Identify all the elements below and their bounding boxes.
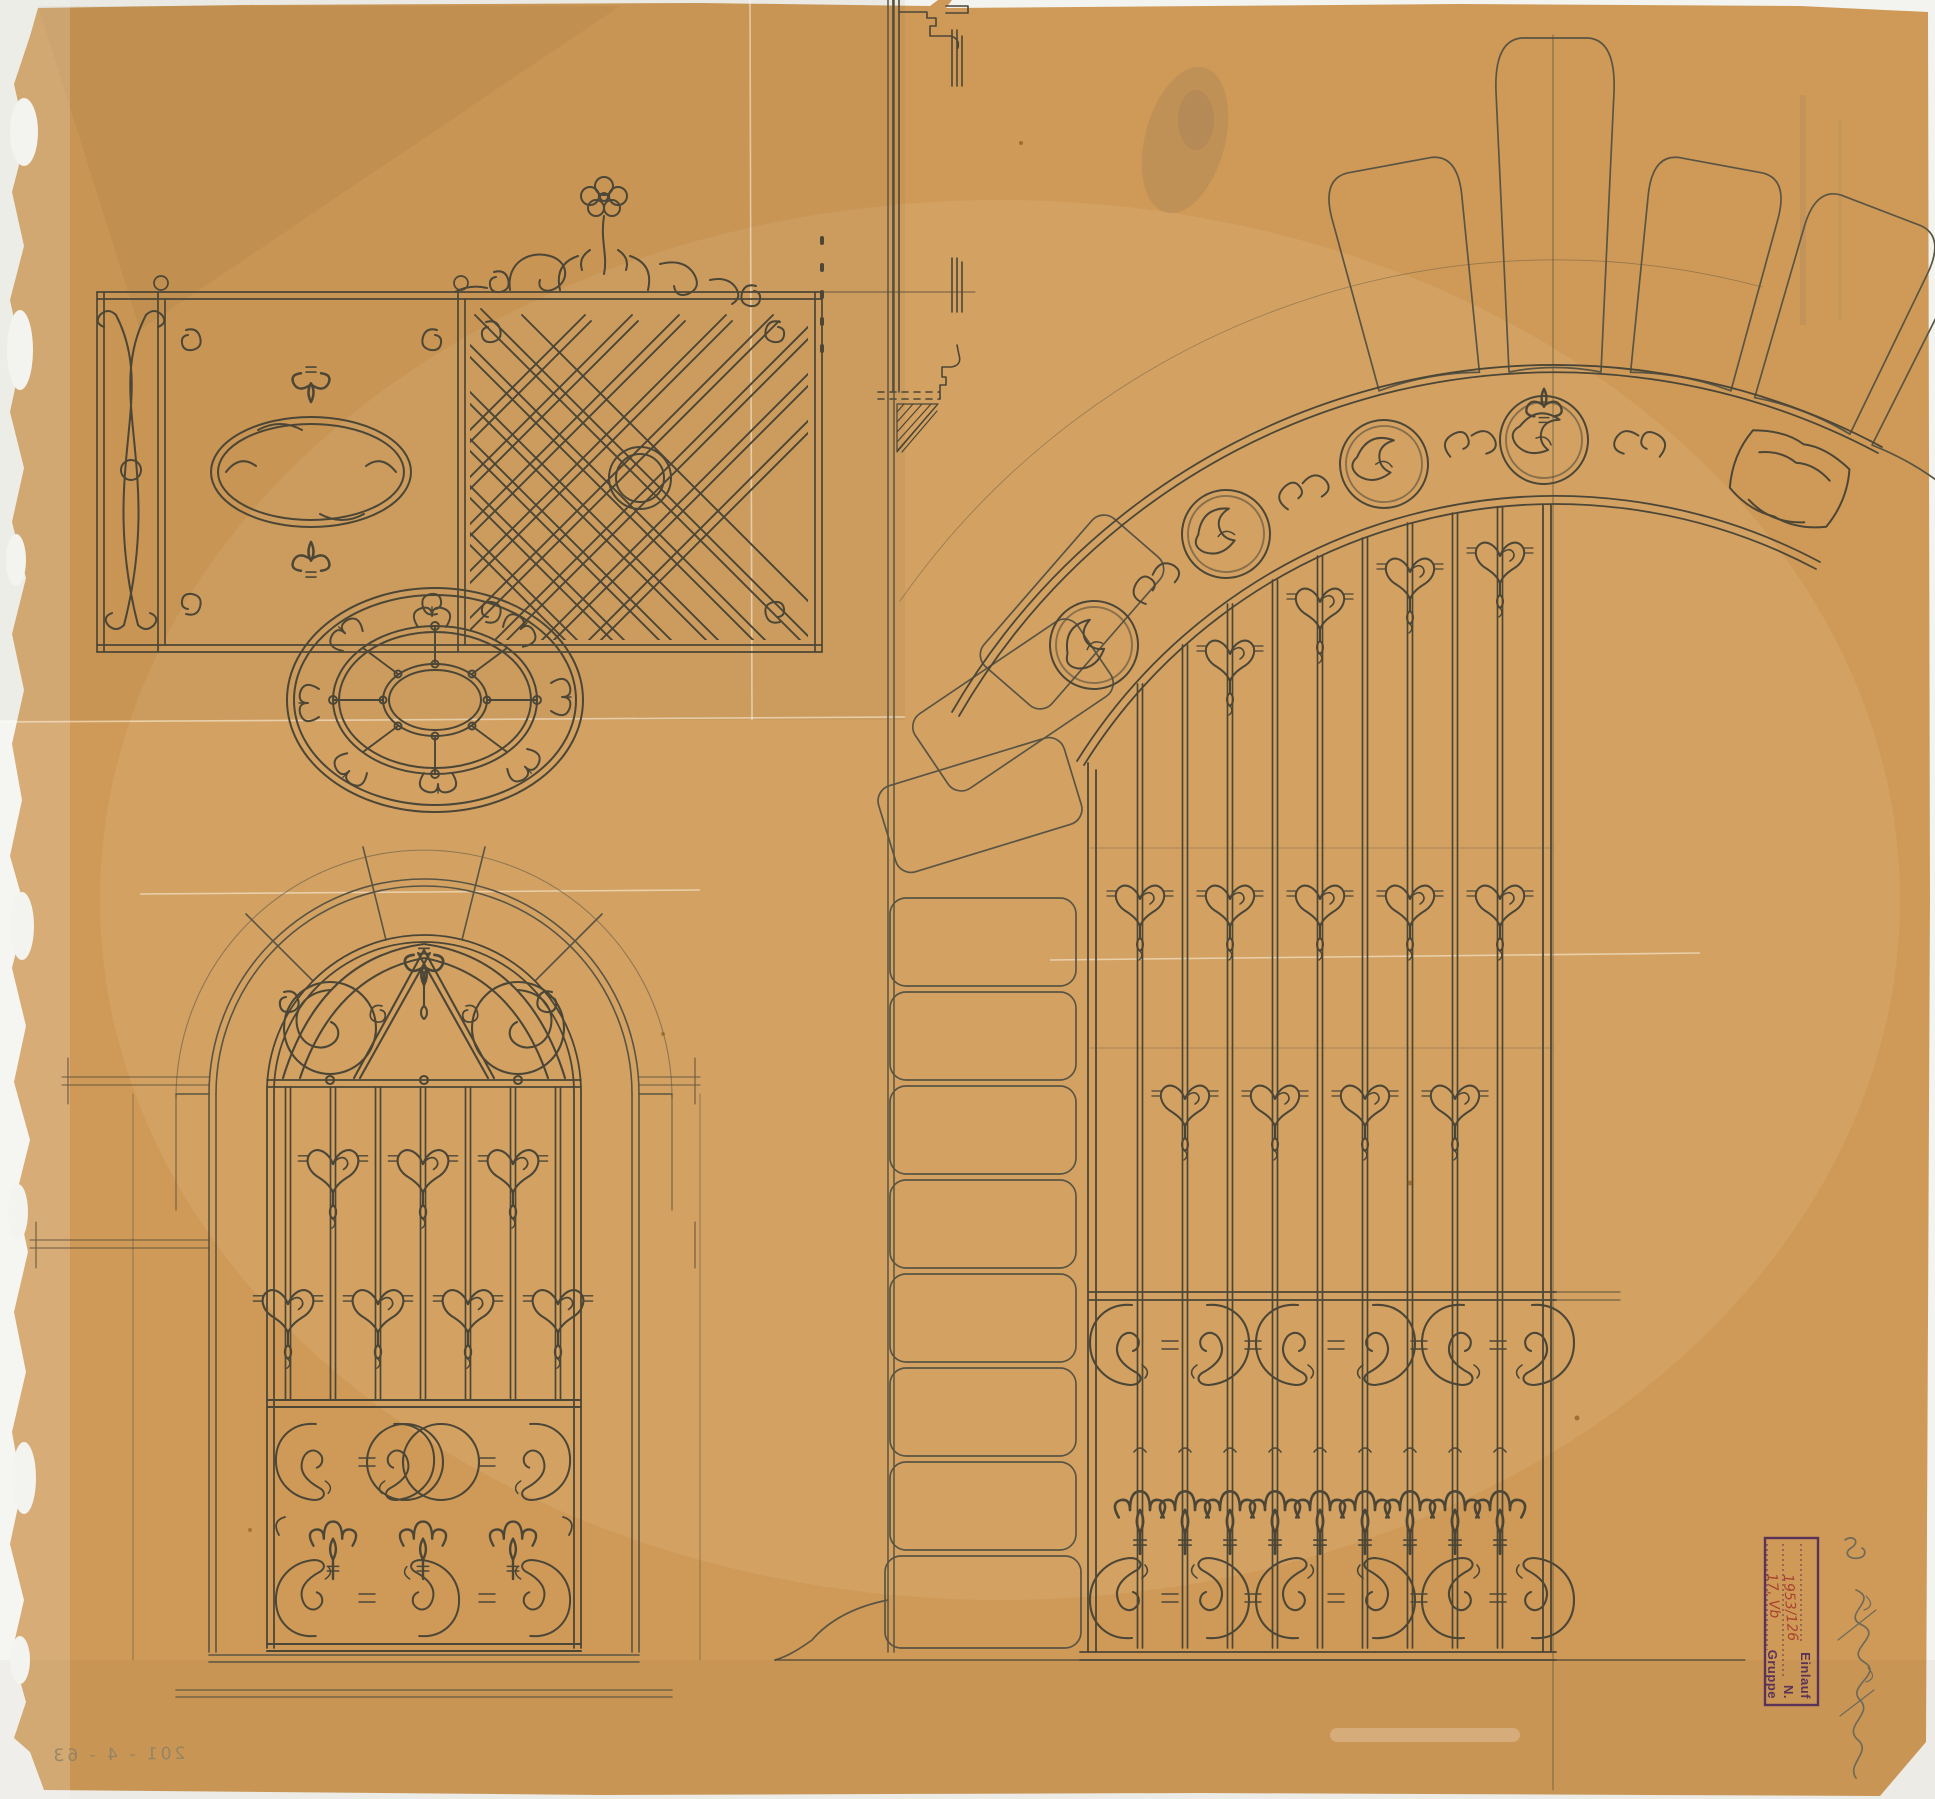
stamp-n-label: N. bbox=[1781, 1685, 1796, 1699]
paper-sheet bbox=[0, 0, 1935, 1799]
stamp-gruppe-label: Gruppe bbox=[1765, 1650, 1780, 1699]
scanned-drawing-sheet: Einlauf N. Gruppe 1953/126 17, Vb 201 - … bbox=[0, 0, 1935, 1799]
corner-note: 201 - 4 - 63 bbox=[50, 1744, 185, 1766]
stamp-einlauf-label: Einlauf bbox=[1798, 1652, 1813, 1699]
drawing-canvas: Einlauf N. Gruppe 1953/126 17, Vb 201 - … bbox=[0, 0, 1935, 1799]
stamp-group-value: 17, Vb bbox=[1763, 1573, 1782, 1619]
